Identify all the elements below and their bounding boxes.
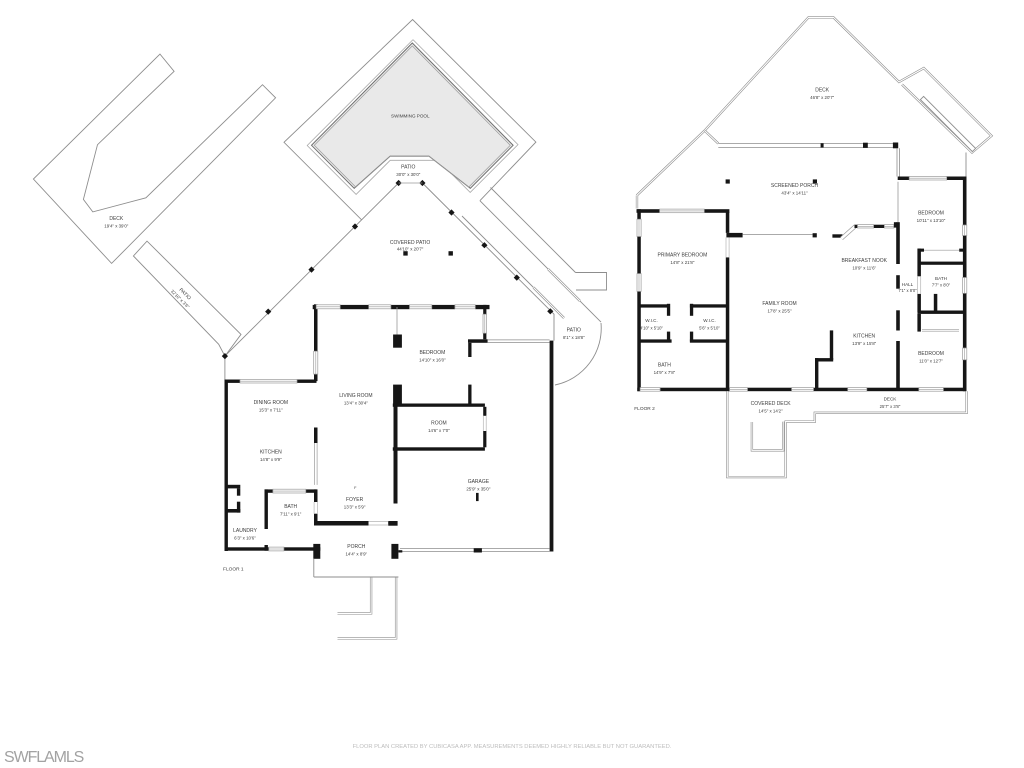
svg-text:KITCHEN: KITCHEN <box>853 334 875 340</box>
svg-text:46'8" x 20'7": 46'8" x 20'7" <box>810 95 835 100</box>
svg-text:SCREENED PORCH: SCREENED PORCH <box>771 183 819 189</box>
svg-text:FLOOR PLAN CREATED BY CUBICASA: FLOOR PLAN CREATED BY CUBICASA APP. MEAS… <box>353 744 672 750</box>
svg-text:44'10" x 20'7": 44'10" x 20'7" <box>397 247 424 252</box>
svg-text:13'9" x 15'8": 13'9" x 15'8" <box>852 341 877 346</box>
svg-text:W.I.C.: W.I.C. <box>645 318 658 323</box>
svg-text:DECK: DECK <box>109 216 124 222</box>
svg-text:BEDROOM: BEDROOM <box>419 350 445 356</box>
svg-text:13'3" x 5'9": 13'3" x 5'9" <box>344 504 366 509</box>
svg-text:19'4" x 39'0": 19'4" x 39'0" <box>104 223 129 228</box>
svg-text:BEDROOM: BEDROOM <box>918 211 944 217</box>
svg-text:PATIO: PATIO <box>567 328 581 334</box>
svg-text:FOYER: FOYER <box>346 497 364 503</box>
svg-text:14'6" x 7'0": 14'6" x 7'0" <box>428 428 450 433</box>
svg-text:25'9" x 35'0": 25'9" x 35'0" <box>466 486 491 491</box>
svg-text:14'8" x 9'9": 14'8" x 9'9" <box>260 457 282 462</box>
svg-text:DECK: DECK <box>884 397 898 402</box>
svg-text:FAMILY ROOM: FAMILY ROOM <box>762 301 796 307</box>
svg-text:DECK: DECK <box>815 88 830 94</box>
svg-text:11'0" x 12'7": 11'0" x 12'7" <box>919 358 943 363</box>
svg-text:7'11" x 9'1": 7'11" x 9'1" <box>280 511 302 516</box>
svg-text:KITCHEN: KITCHEN <box>260 450 282 456</box>
svg-text:SWFLAMLS: SWFLAMLS <box>4 749 84 766</box>
svg-text:6'3" x 10'6": 6'3" x 10'6" <box>234 535 256 540</box>
svg-text:PATIO: PATIO <box>401 165 415 171</box>
svg-text:43'4" x 14'11": 43'4" x 14'11" <box>781 190 808 195</box>
svg-text:BATH: BATH <box>658 363 671 369</box>
svg-text:BATH: BATH <box>935 276 947 281</box>
svg-text:PORCH: PORCH <box>347 544 365 550</box>
svg-text:8'1" x 18'8": 8'1" x 18'8" <box>563 335 585 340</box>
svg-text:SWIMMING POOL: SWIMMING POOL <box>391 114 430 119</box>
svg-text:BATH: BATH <box>284 504 297 510</box>
svg-text:25'7" x 3'8": 25'7" x 3'8" <box>880 404 901 409</box>
svg-text:14'9" x 7'8": 14'9" x 7'8" <box>654 370 676 375</box>
svg-text:30'0" x 30'0": 30'0" x 30'0" <box>396 172 421 177</box>
svg-text:7'7" x 8'0": 7'7" x 8'0" <box>932 283 951 288</box>
svg-text:GARAGE: GARAGE <box>468 479 490 485</box>
svg-text:COVERED PATIO: COVERED PATIO <box>390 240 430 246</box>
svg-text:4'10" x 5'10": 4'10" x 5'10" <box>640 325 663 330</box>
svg-text:17'8" x 25'5": 17'8" x 25'5" <box>767 308 792 313</box>
svg-text:10'9" x 11'6": 10'9" x 11'6" <box>852 265 876 270</box>
svg-text:15'3" x 7'11": 15'3" x 7'11" <box>259 407 283 412</box>
svg-text:7'1" x 8'0": 7'1" x 8'0" <box>898 288 917 293</box>
svg-text:BEDROOM: BEDROOM <box>918 351 944 357</box>
svg-text:HALL: HALL <box>902 282 914 287</box>
svg-text:LAUNDRY: LAUNDRY <box>233 528 257 534</box>
svg-text:14'5" x 14'2": 14'5" x 14'2" <box>759 408 784 413</box>
svg-text:FLOOR 1: FLOOR 1 <box>223 567 244 573</box>
svg-text:FLOOR 2: FLOOR 2 <box>634 406 655 412</box>
svg-text:14'8" x 21'8": 14'8" x 21'8" <box>670 260 695 265</box>
svg-text:COVERED DECK: COVERED DECK <box>751 401 792 407</box>
svg-text:LIVING ROOM: LIVING ROOM <box>339 393 372 399</box>
svg-text:14'4" x 8'9": 14'4" x 8'9" <box>345 551 367 556</box>
svg-text:DINING ROOM: DINING ROOM <box>254 400 288 406</box>
svg-text:5'6" x 5'10": 5'6" x 5'10" <box>699 325 720 330</box>
svg-text:ROOM: ROOM <box>431 421 447 427</box>
svg-text:10'11" x 13'10": 10'11" x 13'10" <box>917 218 946 223</box>
svg-text:BREAKFAST NOOK: BREAKFAST NOOK <box>841 258 887 264</box>
svg-text:14'10" x 16'0": 14'10" x 16'0" <box>419 357 446 362</box>
svg-text:PRIMARY BEDROOM: PRIMARY BEDROOM <box>657 253 707 259</box>
svg-text:13'4" x 30'4": 13'4" x 30'4" <box>344 400 369 405</box>
svg-text:W.I.C.: W.I.C. <box>703 318 716 323</box>
